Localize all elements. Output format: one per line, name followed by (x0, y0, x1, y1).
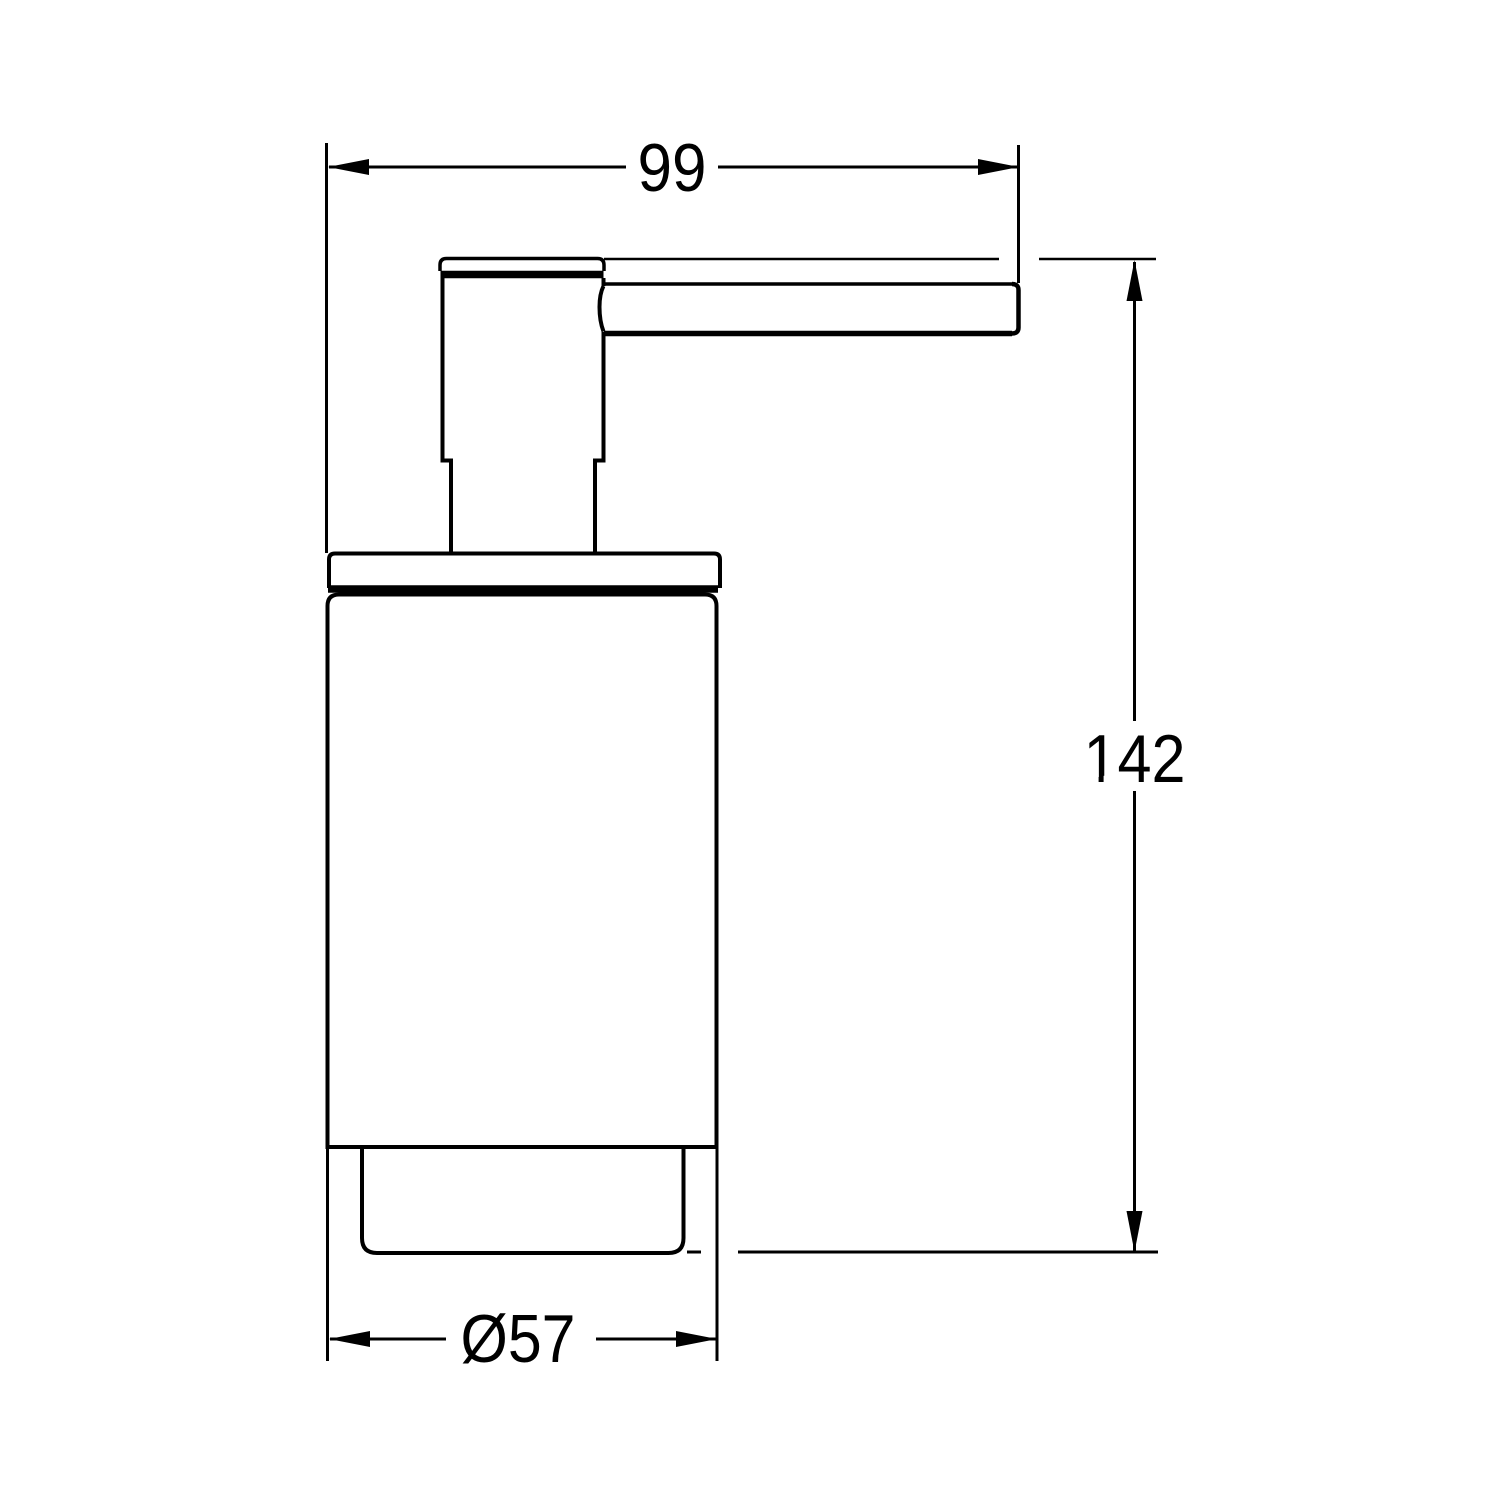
svg-text:99: 99 (638, 130, 707, 206)
svg-text:Ø57: Ø57 (461, 1301, 576, 1377)
svg-text:142: 142 (1084, 721, 1186, 797)
